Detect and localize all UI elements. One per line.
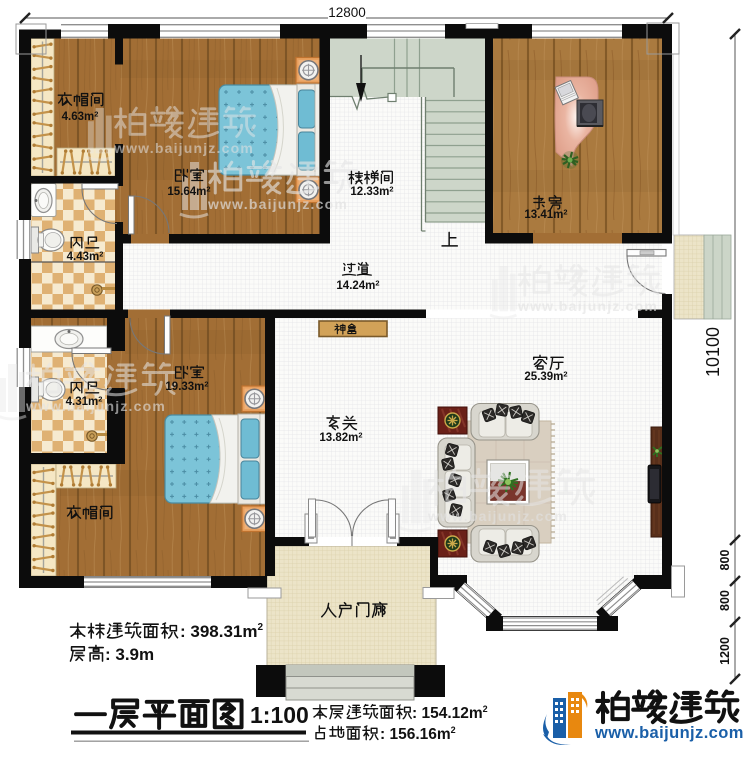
svg-text:4.43m2: 4.43m2 (67, 250, 104, 264)
svg-text:4.31m2: 4.31m2 (66, 395, 103, 409)
svg-text:: 3.9m: : 3.9m (105, 645, 154, 664)
svg-text:www.baijunjz.com: www.baijunjz.com (427, 508, 568, 524)
svg-text:15.64m2: 15.64m2 (167, 185, 210, 199)
svg-text:4.63m2: 4.63m2 (62, 110, 99, 124)
svg-text:: 398.31m2: : 398.31m2 (180, 622, 264, 641)
svg-text:: 154.12m2: : 154.12m2 (412, 704, 488, 722)
svg-text:13.82m2: 13.82m2 (319, 431, 362, 445)
svg-text:: 156.16m2: : 156.16m2 (380, 725, 456, 743)
svg-text:12800: 12800 (328, 5, 366, 20)
svg-text:www.baijunjz.com: www.baijunjz.com (594, 724, 744, 742)
svg-text:1200: 1200 (718, 637, 732, 665)
svg-text:13.41m2: 13.41m2 (524, 208, 567, 222)
svg-text:800: 800 (718, 550, 732, 571)
svg-text:www.baijunjz.com: www.baijunjz.com (517, 298, 658, 314)
svg-text:10100: 10100 (703, 327, 723, 377)
svg-text:www.baijunjz.com: www.baijunjz.com (113, 140, 254, 156)
svg-text:12.33m2: 12.33m2 (350, 185, 393, 199)
svg-text:25.39m2: 25.39m2 (524, 370, 567, 384)
svg-text:www.baijunjz.com: www.baijunjz.com (207, 196, 348, 212)
svg-text:1:100: 1:100 (250, 702, 309, 728)
svg-text:19.33m2: 19.33m2 (165, 380, 208, 394)
svg-text:800: 800 (718, 590, 732, 611)
svg-text:14.24m2: 14.24m2 (336, 279, 379, 293)
